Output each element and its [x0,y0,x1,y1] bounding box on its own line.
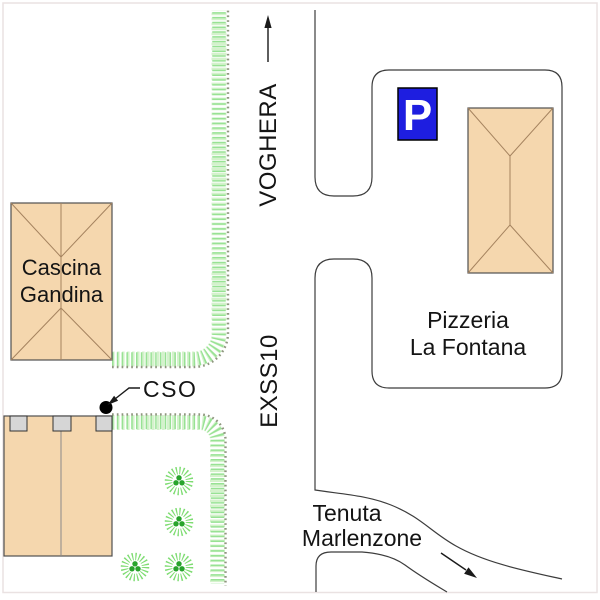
chimney-square [10,416,27,431]
label-tenuta-line2: Marlenzone [302,525,422,551]
bush-ring [169,557,190,578]
parking-sign-letter: P [403,91,432,140]
hedge-upper-dots [112,10,228,367]
bush [125,557,146,578]
bush-leaf [176,561,181,566]
bush-leaf [176,516,181,521]
road-and-parking-outline [315,10,562,579]
label-cascina-line1: Cascina [22,255,102,280]
map-drawing: Cascina Gandina CSO Pizzeria La Fontana … [0,0,600,600]
bush-ring [169,471,190,492]
cso-leader-line [115,388,140,399]
label-exss10: EXSS10 [256,334,283,428]
label-pizzeria-line1: Pizzeria [427,307,509,333]
bush-leaf [173,521,178,526]
bush-leaf [179,566,184,571]
site-map: Cascina Gandina CSO Pizzeria La Fontana … [0,0,600,600]
bush-leaf [135,566,140,571]
hedge-lower-dots [112,415,226,587]
hedge-lower-soft [112,423,218,585]
bush-leaf [176,475,181,480]
bush [169,557,190,578]
bush-leaf [179,480,184,485]
road-exss10-lower-edge [316,552,447,592]
bush-ring [125,557,146,578]
bush-ring [169,512,190,533]
tenuta-arrowhead [464,567,477,578]
hedge-upper-soft [112,10,219,359]
bush-leaf [132,561,137,566]
label-voghera: VOGHERA [255,83,282,207]
label-tenuta-line1: Tenuta [312,500,381,526]
bush-leaf [129,566,134,571]
bush [169,471,190,492]
chimney-square [96,416,112,431]
voghera-arrowhead [264,15,271,28]
bush [169,512,190,533]
hedge-upper-teeth [112,10,219,359]
bush-leaf [173,566,178,571]
bush-leaf [179,521,184,526]
chimney-square [53,416,71,431]
barn-building [4,416,112,556]
bush-leaf [173,480,178,485]
tenuta-arrow-line [441,553,466,570]
label-cso: CSO [143,376,197,402]
hedge-lower-teeth [112,423,218,585]
label-cascina-line2: Gandina [20,282,104,307]
label-pizzeria-line2: La Fontana [410,334,527,360]
